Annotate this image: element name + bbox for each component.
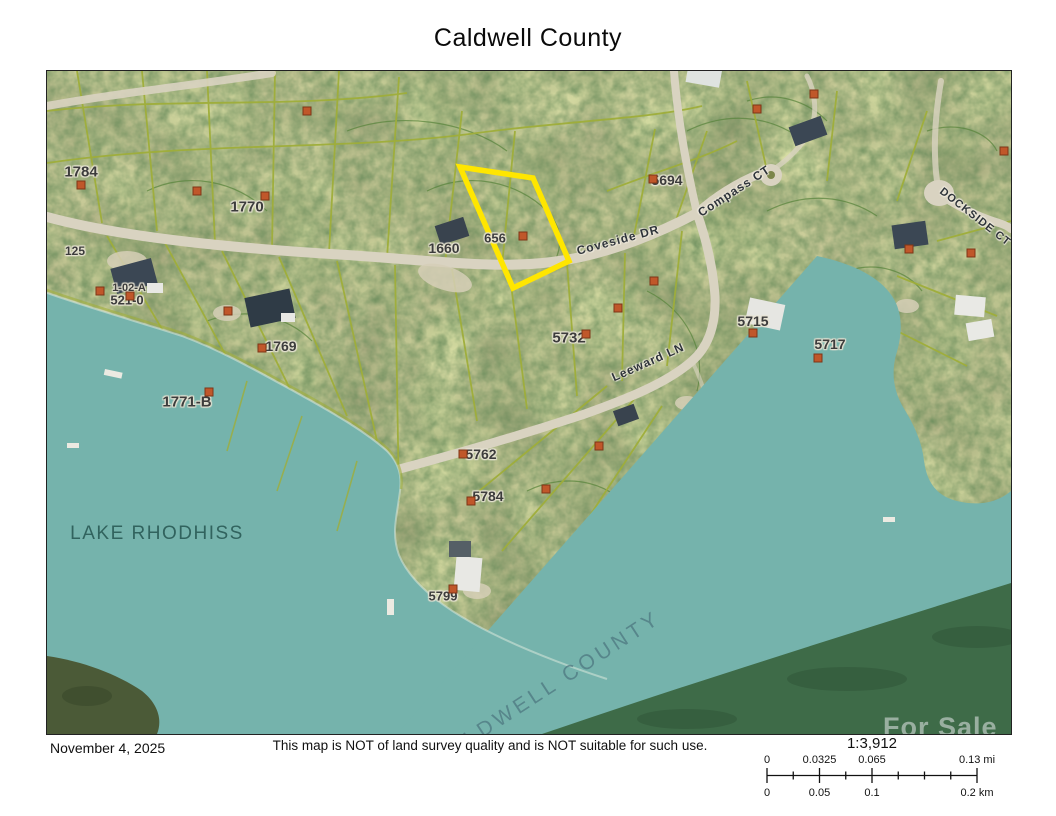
parcel-number-label: 5715 (737, 313, 768, 329)
scale-bar: 1:3,912 00.03250.0650.13 mi 00.050.10.2 … (766, 735, 1010, 807)
structure-marker-icon (193, 187, 202, 196)
scale-tick-label: 0.13 mi (959, 754, 995, 766)
scale-tick-label: 0.05 (809, 787, 830, 799)
structure-marker-icon (649, 175, 658, 184)
structure-marker-icon (749, 329, 758, 338)
county-boundary-label: CALDWELL COUNTY (429, 606, 666, 735)
structure-marker-icon (258, 344, 267, 353)
structure-marker-icon (77, 181, 86, 190)
structure-marker-icon (595, 442, 604, 451)
parcel-number-label: 5762 (465, 446, 496, 462)
structure-marker-icon (126, 292, 135, 301)
parcel-number-label: 1660 (428, 240, 459, 256)
map-date: November 4, 2025 (50, 740, 165, 756)
structure-marker-icon (810, 90, 819, 99)
road-name-label: Compass CT (695, 162, 773, 219)
parcel-number-label: 5784 (472, 488, 503, 504)
structure-marker-icon (467, 497, 476, 506)
parcel-number-label: 1770 (230, 199, 263, 216)
structure-marker-icon (224, 307, 233, 316)
structure-marker-icon (1000, 147, 1009, 156)
parcel-number-label: 1769 (265, 338, 296, 354)
scale-tick-label: 0 (764, 754, 770, 766)
structure-marker-icon (96, 287, 105, 296)
road-name-label: Coveside DR (575, 222, 661, 258)
scale-miles-labels: 00.03250.0650.13 mi (766, 754, 978, 767)
structure-marker-icon (753, 105, 762, 114)
structure-marker-icon (967, 249, 976, 258)
map-document-page: Caldwell County (0, 0, 1056, 816)
lake-name-label: LAKE RHODHISS (70, 523, 244, 545)
structure-marker-icon (905, 245, 914, 254)
parcel-number-label: 5717 (814, 336, 845, 352)
road-name-label: DOCKSIDE CT (937, 186, 1012, 249)
structure-marker-icon (582, 330, 591, 339)
disclaimer-text: This map is NOT of land survey quality a… (180, 738, 800, 753)
structure-marker-icon (542, 485, 551, 494)
scale-tick-label: 0.0325 (803, 754, 837, 766)
parcel-number-label: 125 (65, 244, 85, 258)
scale-tick-label: 0.2 km (960, 787, 993, 799)
structure-marker-icon (614, 304, 623, 313)
page-title: Caldwell County (0, 24, 1056, 53)
structure-marker-icon (650, 277, 659, 286)
structure-marker-icon (519, 232, 528, 241)
scale-tick-label: 0 (764, 787, 770, 799)
scale-tick-label: 0.065 (858, 754, 886, 766)
structure-marker-icon (303, 107, 312, 116)
scale-km-labels: 00.050.10.2 km (766, 787, 978, 800)
for-sale-watermark: For Sale (883, 712, 998, 735)
structure-marker-icon (814, 354, 823, 363)
structure-marker-icon (261, 192, 270, 201)
parcel-number-label: 656 (484, 231, 506, 246)
parcel-number-label: 1784 (64, 164, 97, 181)
map-labels-overlay: 178417701251-02-A521-0166065656941769177… (47, 71, 1011, 734)
scale-ratio: 1:3,912 (766, 735, 978, 752)
scale-ruler (766, 768, 980, 783)
scale-tick-label: 0.1 (864, 787, 879, 799)
structure-marker-icon (205, 388, 214, 397)
structure-marker-icon (459, 450, 468, 459)
structure-marker-icon (449, 585, 458, 594)
road-name-label: Leeward LN (610, 340, 687, 385)
map-canvas: 178417701251-02-A521-0166065656941769177… (46, 70, 1012, 735)
